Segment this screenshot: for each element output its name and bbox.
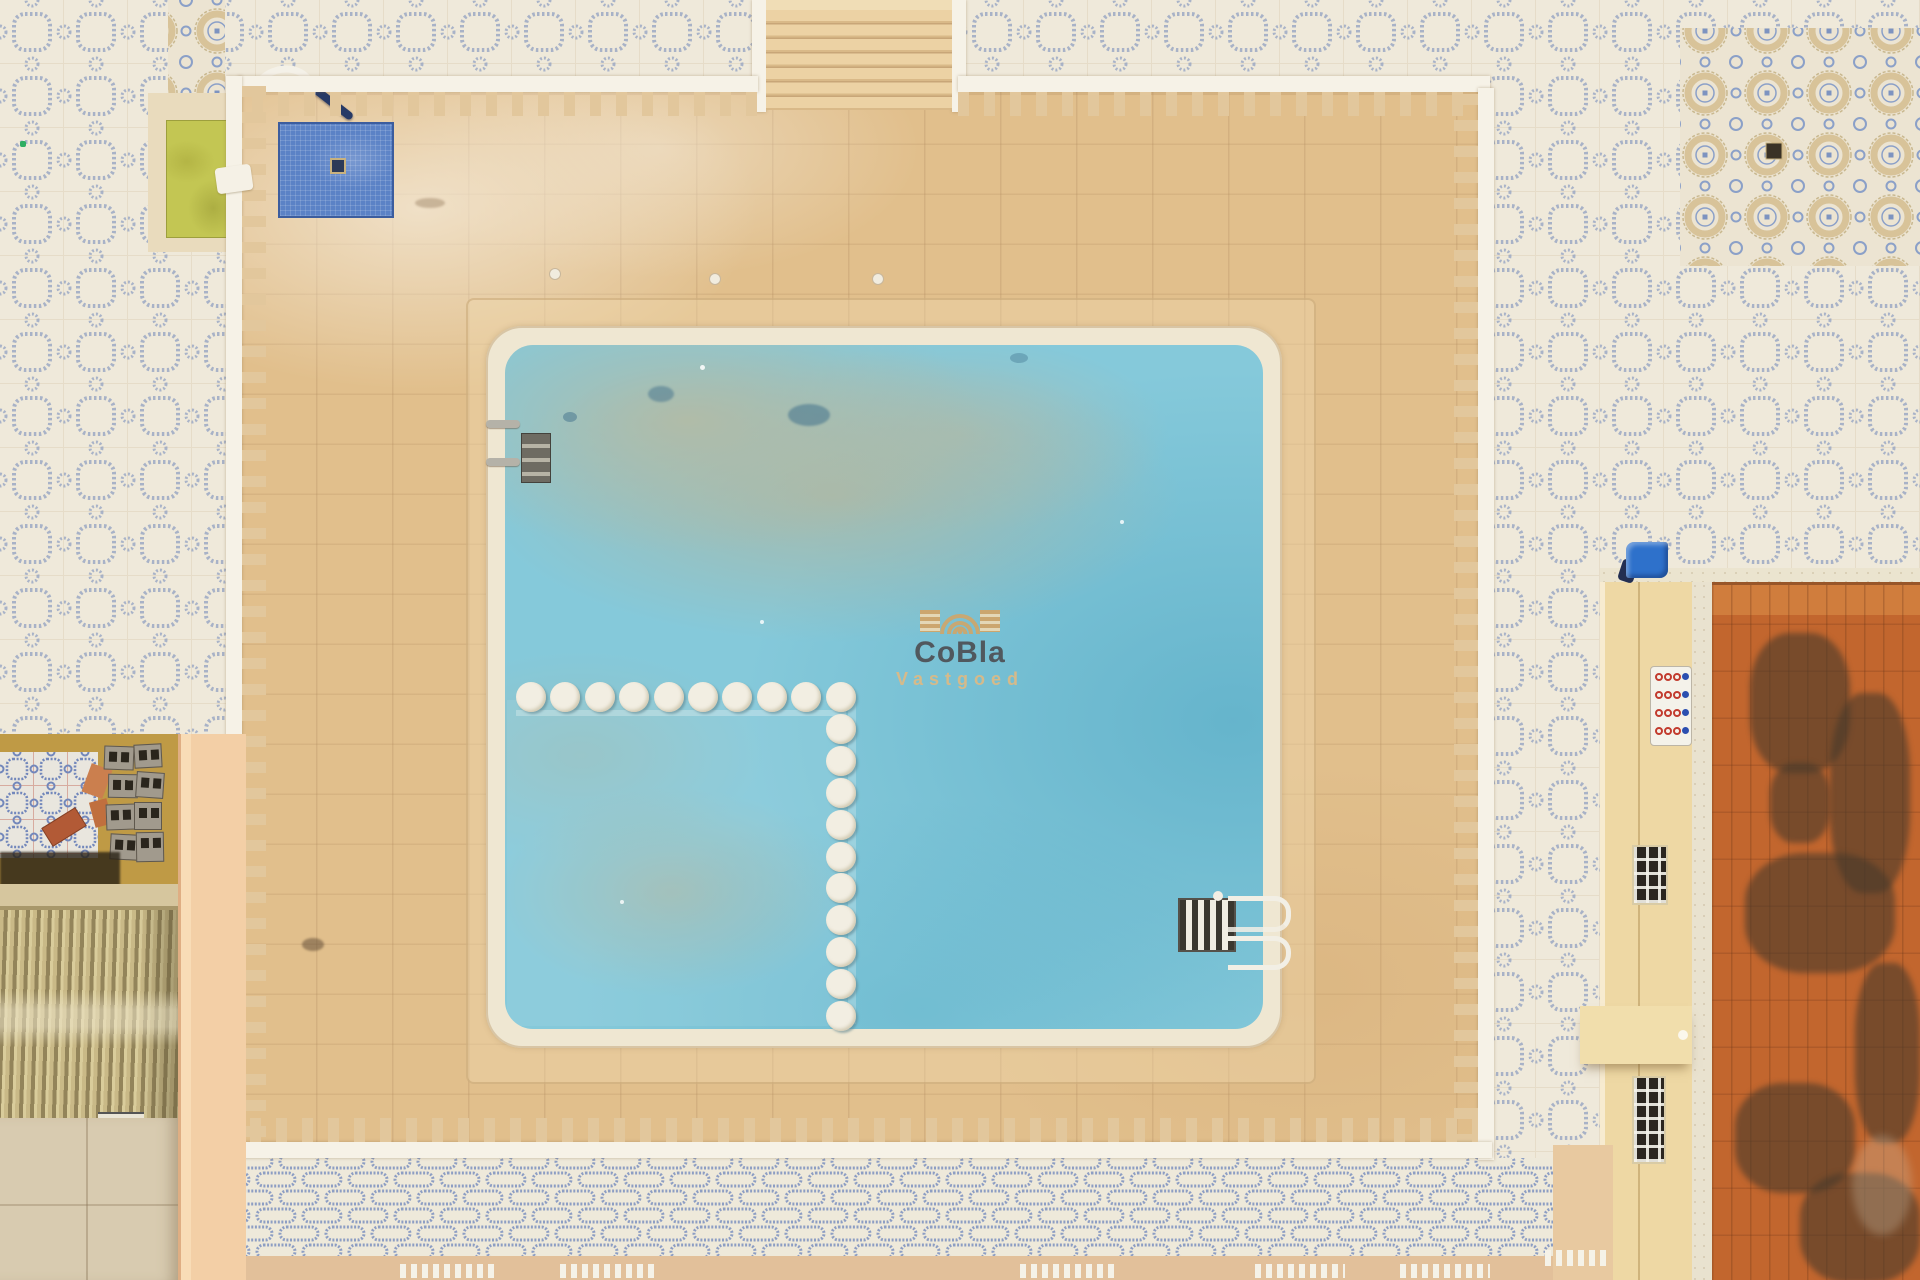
divider-disc	[516, 682, 546, 712]
concrete-yard	[0, 1118, 178, 1280]
stair-landing	[766, 0, 952, 10]
divider-disc	[688, 682, 718, 712]
divider-disc	[654, 682, 684, 712]
chain-tiled-terrace-wall	[246, 1158, 1553, 1258]
green-debris-dot	[20, 141, 26, 147]
kiddie-pool-section	[507, 700, 847, 1026]
logo-arcs	[938, 596, 982, 638]
footbath-drain	[330, 158, 346, 174]
water-debris	[760, 620, 764, 624]
logo-block-right	[980, 610, 1000, 632]
rule-pictogram	[1655, 709, 1663, 717]
terracotta-roof	[1712, 582, 1920, 1280]
ladder-rail	[486, 458, 520, 466]
divider-disc	[826, 1001, 856, 1031]
ladder-rail	[1228, 936, 1291, 970]
rule-pictogram	[1655, 727, 1663, 735]
divider-disc	[826, 714, 856, 744]
rule-pictogram	[1664, 709, 1672, 717]
fence-balusters-right	[1454, 94, 1478, 1150]
courtyard-shadow	[0, 852, 120, 888]
deck-stain	[415, 198, 445, 208]
roof-weathering	[1770, 763, 1830, 843]
fence-rail-top-left	[238, 76, 758, 92]
watermark-logo	[912, 596, 1008, 638]
fence-mounted-box	[214, 164, 253, 195]
roof-weathering	[1745, 853, 1895, 973]
breeze-block	[108, 774, 138, 799]
rule-pictogram	[1682, 673, 1689, 680]
divider-disc	[826, 682, 856, 712]
fence-balusters-top	[252, 92, 758, 116]
rule-pictogram	[1664, 691, 1672, 699]
barred-window-lower	[1632, 1076, 1666, 1164]
divider-disc	[791, 682, 821, 712]
rule-pictogram	[1673, 673, 1681, 681]
divider-disc	[826, 746, 856, 776]
aerial-pool-photo: CoBla Vastgoed	[0, 0, 1920, 1280]
stair-steps	[766, 10, 952, 110]
deck-anchor-cap	[709, 273, 721, 285]
barred-window-upper	[1632, 845, 1668, 905]
breeze-block	[136, 832, 165, 862]
white-grate	[400, 1264, 495, 1278]
breeze-block	[104, 745, 135, 770]
blue-mosaic-footbath	[278, 122, 394, 218]
water-dark-spot	[648, 386, 674, 402]
corrugated-roof	[0, 906, 178, 1122]
blue-storage-box	[1626, 542, 1668, 578]
breeze-block	[106, 803, 137, 830]
divider-disc	[585, 682, 615, 712]
rule-pictogram	[1682, 709, 1689, 716]
watermark-brand-text: CoBla	[914, 638, 1006, 668]
divider-disc	[826, 778, 856, 808]
watermark: CoBla Vastgoed	[860, 596, 1060, 692]
corrugated-dust	[0, 910, 178, 1122]
water-debris	[1120, 520, 1124, 524]
wall-beam	[1580, 1006, 1692, 1064]
white-grate	[1020, 1264, 1115, 1278]
white-grate	[1255, 1264, 1345, 1278]
medallion-tile-patch	[1680, 28, 1920, 266]
divider-disc	[826, 969, 856, 999]
ladder-rail	[1228, 896, 1291, 932]
ladder-steps	[521, 433, 551, 483]
breeze-block	[135, 771, 165, 799]
white-grate	[1545, 1250, 1607, 1266]
pool-rules-sign	[1650, 666, 1692, 746]
floor-drain	[1766, 143, 1782, 159]
fence-rail-right	[1478, 88, 1494, 1160]
divider-disc	[826, 842, 856, 872]
wall-ledge	[0, 884, 178, 908]
water-dark-spot	[563, 412, 577, 422]
rule-pictogram	[1655, 673, 1663, 681]
divider-disc	[826, 937, 856, 967]
water-debris	[700, 365, 705, 370]
watermark-subtitle-text: Vastgoed	[896, 668, 1024, 691]
fence-rail-bottom	[226, 1142, 1492, 1158]
rule-pictogram	[1655, 691, 1663, 699]
building-ridge-strip	[1692, 582, 1714, 1280]
roof-weathering	[1855, 963, 1920, 1143]
white-grate	[560, 1264, 655, 1278]
peach-wall	[178, 734, 246, 1280]
ladder-knob	[1213, 891, 1223, 901]
rule-pictogram	[1682, 691, 1689, 698]
breeze-block	[133, 743, 162, 768]
divider-disc	[619, 682, 649, 712]
deck-anchor-cap	[872, 273, 884, 285]
ladder-rail	[486, 420, 520, 428]
rule-pictogram	[1673, 727, 1681, 735]
deck-stain	[302, 938, 324, 951]
breeze-block	[134, 802, 162, 830]
rule-pictogram	[1664, 673, 1672, 681]
water-dark-spot	[1010, 353, 1028, 363]
rule-pictogram	[1682, 727, 1689, 734]
divider-disc	[826, 810, 856, 840]
fence-rail-top-right	[958, 76, 1490, 92]
logo-block-left	[920, 610, 940, 632]
deck-anchor-cap	[549, 268, 561, 280]
rule-pictogram	[1673, 709, 1681, 717]
beam-knob	[1678, 1030, 1688, 1040]
rule-pictogram	[1673, 691, 1681, 699]
water-dark-spot	[788, 404, 830, 426]
fence-balusters-top	[958, 92, 1478, 116]
fence-balusters-bottom	[250, 1118, 1478, 1142]
divider-disc	[757, 682, 787, 712]
white-grate	[1400, 1264, 1490, 1278]
rule-pictogram	[1664, 727, 1672, 735]
medallion-tile-strip	[168, 0, 225, 102]
roof-dust	[1852, 1135, 1912, 1235]
